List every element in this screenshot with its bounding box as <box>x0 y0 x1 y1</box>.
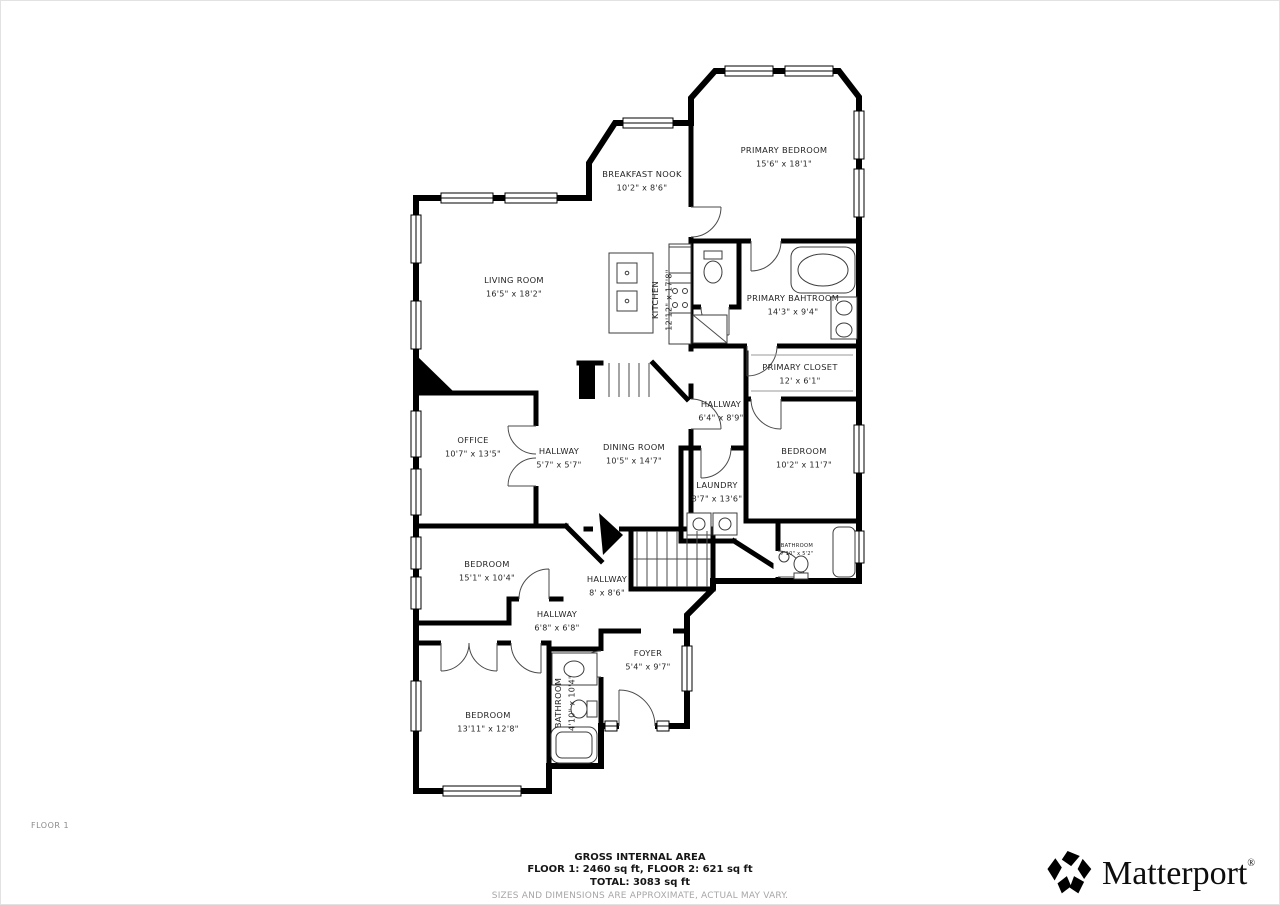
room-label: BEDROOM15'1" x 10'4" <box>459 559 515 583</box>
window <box>785 66 833 76</box>
room-name: LIVING ROOM <box>484 275 544 285</box>
room-name: BEDROOM <box>781 446 826 456</box>
room-label: KITCHEN12'12" x 17'8" <box>650 269 674 330</box>
room-label: BATHROOM7'10" x 5'2" <box>781 543 814 557</box>
room-dimensions: 10'5" x 14'7" <box>606 457 662 466</box>
kitchen-island <box>609 253 653 333</box>
room-label: PRIMARY CLOSET12' x 6'1" <box>762 362 838 386</box>
room-name: PRIMARY CLOSET <box>762 362 838 372</box>
room-label: BREAKFAST NOOK10'2" x 8'6" <box>602 169 682 193</box>
matterport-logo-icon <box>1046 849 1092 899</box>
room-label: HALLWAY8' x 8'6" <box>587 574 628 598</box>
room-label: HALLWAY6'4" x 8'9" <box>698 399 743 423</box>
window <box>623 118 673 128</box>
matterport-wordmark: Matterport® <box>1102 857 1255 891</box>
room-name: PRIMARY BAHTROOM <box>747 293 839 303</box>
room-name: PRIMARY BEDROOM <box>741 145 828 155</box>
window <box>411 301 421 349</box>
room-name: HALLWAY <box>539 446 580 456</box>
window <box>854 425 864 473</box>
window <box>441 193 493 203</box>
room-label: BEDROOM10'2" x 11'7" <box>776 446 832 470</box>
window <box>411 577 421 609</box>
room-dimensions: 7'10" x 5'2" <box>781 551 814 557</box>
room-name: BEDROOM <box>465 710 510 720</box>
window <box>725 66 773 76</box>
room-dimensions: 10'7" x 13'5" <box>445 450 501 459</box>
exterior-walls <box>416 71 859 791</box>
room-label: PRIMARY BAHTROOM14'3" x 9'4" <box>747 293 839 317</box>
room-name: HALLWAY <box>701 399 742 409</box>
window <box>411 469 421 515</box>
toilet <box>794 556 808 579</box>
window <box>605 721 617 731</box>
room-label: HALLWAY5'7" x 5'7" <box>536 446 581 470</box>
room-name: BATHROOM <box>781 543 813 549</box>
window <box>505 193 557 203</box>
room-label: LIVING ROOM16'5" x 18'2" <box>484 275 544 299</box>
matterport-branding: Matterport® <box>1046 849 1255 899</box>
room-dimensions: 12' x 6'1" <box>779 377 820 386</box>
window <box>854 169 864 217</box>
floorplan-page: PRIMARY BEDROOM15'6" x 18'1"BREAKFAST NO… <box>0 0 1280 905</box>
shower <box>693 315 727 343</box>
room-label: LAUNDRY8'7" x 13'6" <box>692 480 743 504</box>
closet-shelves <box>751 355 853 391</box>
bathtub <box>551 727 597 763</box>
room-dimensions: 16'5" x 18'2" <box>486 290 542 299</box>
window <box>657 721 669 731</box>
room-name: OFFICE <box>457 435 488 445</box>
room-dimensions: 5'4" x 9'7" <box>625 663 670 672</box>
room-label: OFFICE10'7" x 13'5" <box>445 435 501 459</box>
room-dimensions: 10'2" x 11'7" <box>776 461 832 470</box>
room-name: HALLWAY <box>587 574 628 584</box>
room-label: BEDROOM13'11" x 12'8" <box>457 710 518 734</box>
window <box>411 681 421 731</box>
window <box>411 215 421 263</box>
floor-label: FLOOR 1 <box>31 821 69 830</box>
window <box>854 111 864 159</box>
room-name: FOYER <box>634 648 662 658</box>
room-dimensions: 5'7" x 5'7" <box>536 461 581 470</box>
staircase-upper <box>579 361 687 399</box>
room-name: KITCHEN <box>650 281 660 319</box>
room-label: FOYER5'4" x 9'7" <box>625 648 670 672</box>
room-dimensions: 4'10" x 10'4" <box>568 675 577 731</box>
bathtub <box>833 527 855 577</box>
room-dimensions: 8'7" x 13'6" <box>692 495 743 504</box>
room-name: BEDROOM <box>464 559 509 569</box>
window <box>682 646 692 691</box>
room-name: BREAKFAST NOOK <box>602 169 682 179</box>
room-label: HALLWAY6'8" x 6'8" <box>534 609 579 633</box>
room-dimensions: 15'6" x 18'1" <box>756 160 812 169</box>
registered-mark: ® <box>1247 858 1255 869</box>
room-dimensions: 14'3" x 9'4" <box>768 308 819 317</box>
room-name: DINING ROOM <box>603 442 665 452</box>
stair-newel <box>599 513 623 555</box>
fireplace <box>416 355 455 393</box>
room-label: PRIMARY BEDROOM15'6" x 18'1" <box>741 145 828 169</box>
room-dimensions: 6'8" x 6'8" <box>534 624 579 633</box>
window <box>411 411 421 457</box>
room-name: BATHROOM <box>553 678 563 728</box>
room-label: DINING ROOM10'5" x 14'7" <box>603 442 665 466</box>
room-name: LAUNDRY <box>696 480 738 490</box>
room-dimensions: 12'12" x 17'8" <box>665 269 674 330</box>
window <box>411 537 421 569</box>
room-name: HALLWAY <box>537 609 578 619</box>
floorplan-drawing: PRIMARY BEDROOM15'6" x 18'1"BREAKFAST NO… <box>1 1 1280 905</box>
room-dimensions: 6'4" x 8'9" <box>698 414 743 423</box>
bathtub <box>791 247 855 293</box>
window <box>443 786 521 796</box>
room-dimensions: 13'11" x 12'8" <box>457 725 518 734</box>
toilet <box>704 251 722 283</box>
fixtures <box>416 244 857 763</box>
vanity-double-sink <box>831 297 857 339</box>
room-dimensions: 8' x 8'6" <box>589 589 625 598</box>
room-dimensions: 15'1" x 10'4" <box>459 574 515 583</box>
room-dimensions: 10'2" x 8'6" <box>617 184 668 193</box>
